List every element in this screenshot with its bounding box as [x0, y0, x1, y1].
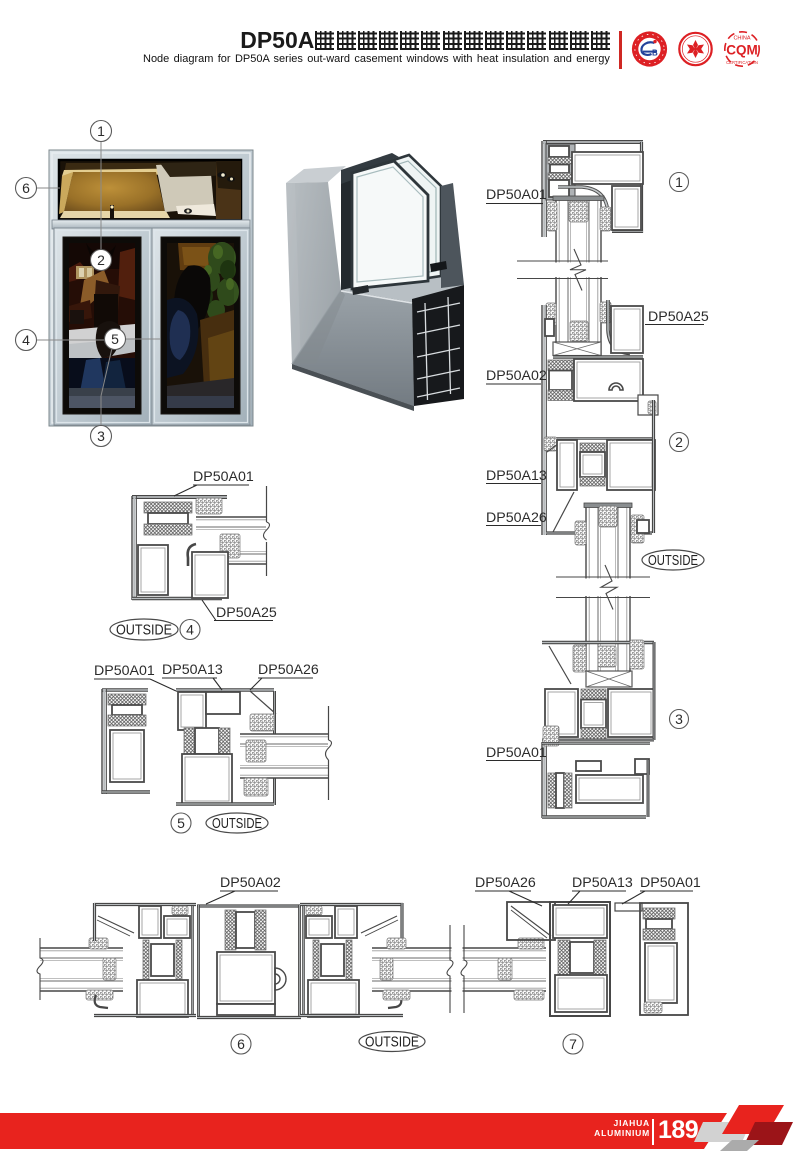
svg-text:DP50A01: DP50A01 — [94, 663, 155, 679]
svg-text:7: 7 — [569, 1036, 577, 1052]
svg-text:5: 5 — [177, 815, 185, 831]
svg-text:DP50A25: DP50A25 — [216, 605, 277, 621]
svg-text:DP50A26: DP50A26 — [486, 510, 547, 526]
svg-text:DP50A13: DP50A13 — [486, 468, 547, 484]
svg-text:OUTSIDE: OUTSIDE — [648, 553, 698, 569]
svg-text:5: 5 — [111, 331, 119, 347]
svg-text:OUTSIDE: OUTSIDE — [365, 1035, 419, 1051]
svg-text:4: 4 — [22, 332, 30, 348]
svg-text:DP50A13: DP50A13 — [572, 875, 633, 891]
svg-text:3: 3 — [675, 711, 683, 727]
svg-text:OUTSIDE: OUTSIDE — [212, 816, 262, 832]
svg-text:DP50A02: DP50A02 — [486, 368, 547, 384]
svg-text:OUTSIDE: OUTSIDE — [116, 623, 172, 639]
svg-text:DP50A01: DP50A01 — [640, 875, 701, 891]
svg-text:6: 6 — [237, 1036, 245, 1052]
svg-text:3: 3 — [97, 428, 105, 444]
svg-text:DP50A26: DP50A26 — [475, 875, 536, 891]
svg-text:2: 2 — [675, 434, 683, 450]
svg-text:DP50A01: DP50A01 — [486, 187, 547, 203]
svg-text:1: 1 — [97, 123, 105, 139]
svg-text:DP50A25: DP50A25 — [648, 309, 709, 325]
svg-text:1: 1 — [675, 174, 683, 190]
svg-text:DP50A02: DP50A02 — [220, 875, 281, 891]
svg-text:DP50A26: DP50A26 — [258, 662, 319, 678]
svg-text:DP50A13: DP50A13 — [162, 662, 223, 678]
svg-text:4: 4 — [186, 622, 194, 638]
svg-text:DP50A01: DP50A01 — [193, 469, 254, 485]
svg-text:2: 2 — [97, 252, 105, 268]
svg-text:6: 6 — [22, 180, 30, 196]
svg-text:DP50A01: DP50A01 — [486, 745, 547, 761]
